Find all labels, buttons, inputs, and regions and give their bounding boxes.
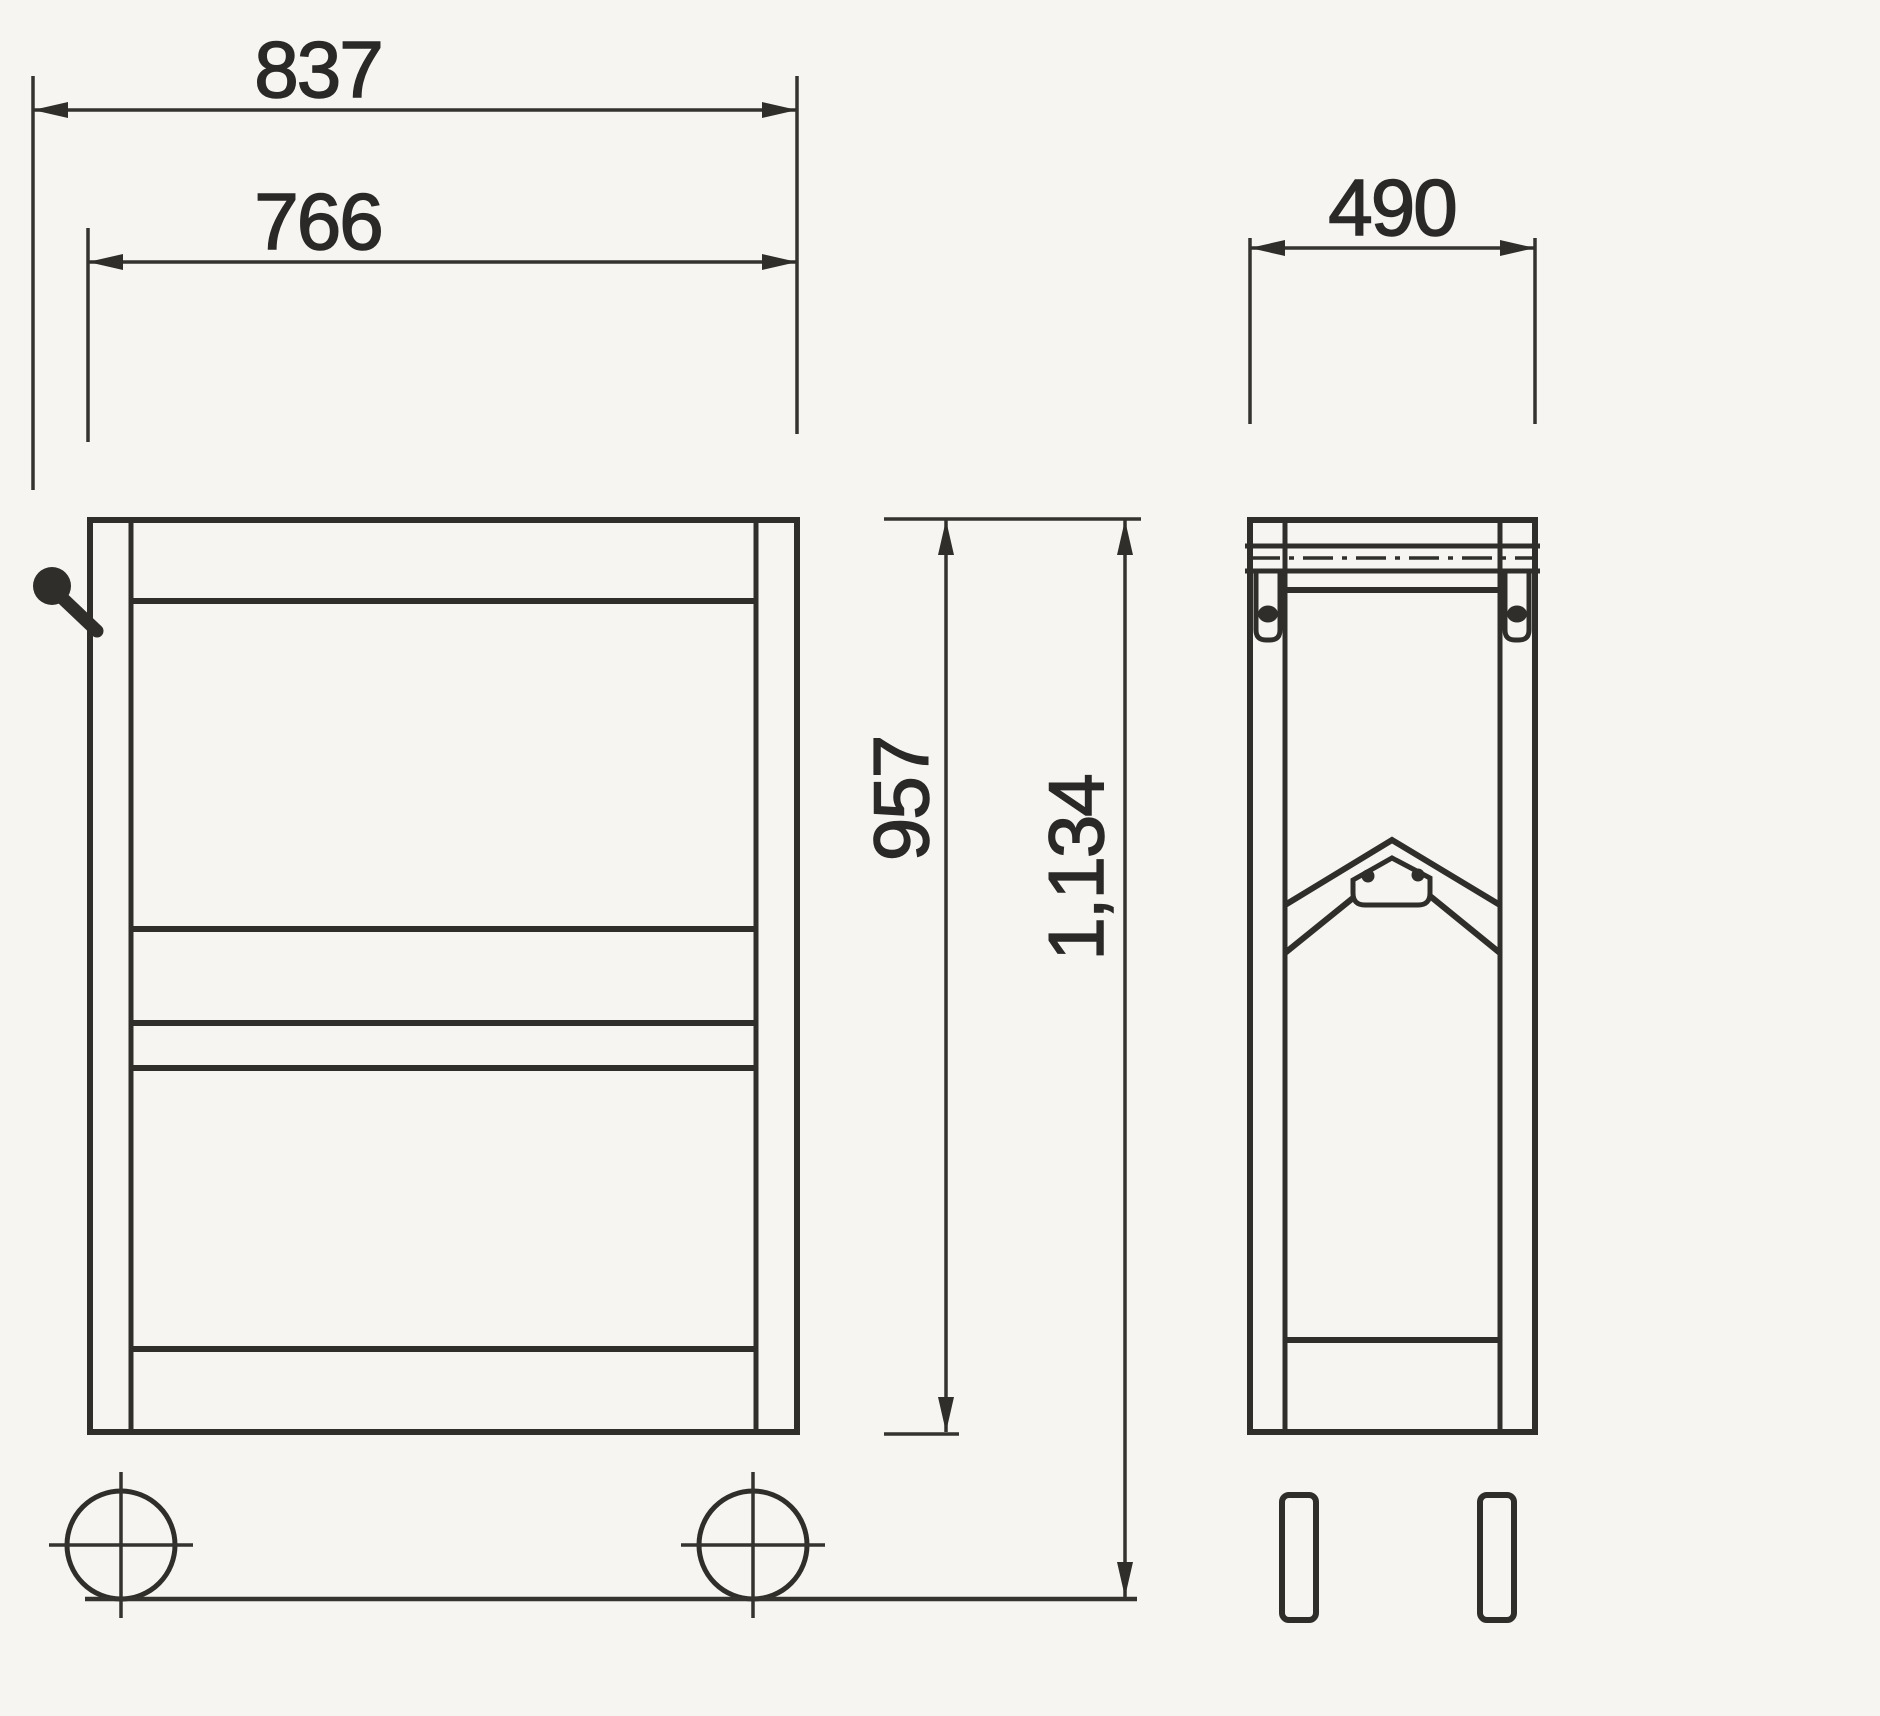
- dim-body-height: 957: [857, 519, 1141, 1434]
- dim-arrow-left: [88, 254, 123, 270]
- dimension-drawing: 837 766 957 1,134 490: [0, 0, 1880, 1716]
- front-wheel-right: [681, 1472, 825, 1618]
- dim-overall-width: 837: [33, 25, 797, 490]
- dim-arrow-right: [762, 254, 797, 270]
- front-wheel-left: [49, 1472, 193, 1618]
- brace-bolt-right: [1412, 869, 1425, 882]
- side-hanger-left: [1256, 571, 1280, 640]
- dim-overall-height: 1,134: [1032, 520, 1133, 1597]
- dim-arrow-up: [938, 520, 954, 555]
- front-view: [33, 520, 1137, 1618]
- brace-upper-chevron: [1285, 840, 1500, 905]
- dim-arrow-right: [762, 102, 797, 118]
- side-wheel-left: [1282, 1495, 1316, 1620]
- side-hanger-right: [1505, 571, 1529, 640]
- hanger-bolt: [1258, 606, 1278, 623]
- brace-lower-left: [1285, 898, 1353, 953]
- dim-arrow-right: [1500, 240, 1535, 256]
- front-outline: [90, 520, 797, 1432]
- dim-arrow-left: [1250, 240, 1285, 256]
- dim-label-depth: 490: [1328, 163, 1455, 252]
- dim-arrow-down: [938, 1397, 954, 1432]
- side-v-brace: [1285, 840, 1500, 953]
- side-outline: [1250, 520, 1535, 1432]
- handle-knob: [33, 567, 71, 605]
- dim-label-overall-width: 837: [254, 25, 381, 114]
- drawing-sheet: 837 766 957 1,134 490: [0, 0, 1880, 1716]
- side-wheel-right: [1480, 1495, 1514, 1620]
- brace-bolt-left: [1362, 870, 1375, 883]
- dim-body-width: 766: [88, 177, 797, 442]
- dim-arrow-left: [33, 102, 68, 118]
- hanger-bolt: [1507, 606, 1527, 623]
- brace-lower-right: [1430, 896, 1500, 953]
- dim-arrow-down: [1117, 1562, 1133, 1597]
- dim-label-body-width: 766: [254, 177, 381, 266]
- dim-label-overall-height: 1,134: [1032, 775, 1120, 961]
- side-view: [1245, 520, 1540, 1620]
- dim-arrow-up: [1117, 520, 1133, 555]
- dim-label-body-height: 957: [857, 737, 945, 861]
- dim-depth: 490: [1250, 163, 1535, 424]
